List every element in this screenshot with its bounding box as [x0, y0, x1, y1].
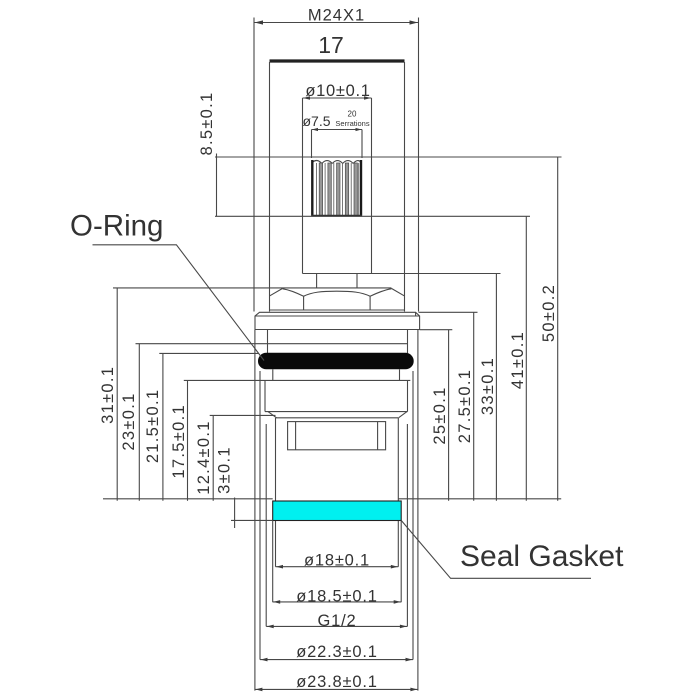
svg-text:G1/2: G1/2 [318, 612, 357, 630]
svg-text:Serrations: Serrations [335, 119, 369, 128]
svg-text:27.5±0.1: 27.5±0.1 [456, 369, 474, 444]
svg-text:ø18±0.1: ø18±0.1 [304, 552, 370, 570]
svg-text:50±0.2: 50±0.2 [540, 284, 558, 342]
svg-text:17: 17 [318, 32, 344, 58]
svg-text:12.4±0.1: 12.4±0.1 [195, 420, 213, 495]
svg-text:41±0.1: 41±0.1 [509, 331, 527, 389]
svg-text:25±0.1: 25±0.1 [431, 386, 449, 444]
svg-text:23±0.1: 23±0.1 [120, 392, 138, 450]
svg-text:33±0.1: 33±0.1 [479, 357, 497, 415]
svg-text:ø18.5±0.1: ø18.5±0.1 [296, 588, 377, 606]
svg-text:O-Ring: O-Ring [70, 210, 163, 243]
svg-text:ø23.8±0.1: ø23.8±0.1 [296, 673, 377, 691]
svg-text:8.5±0.1: 8.5±0.1 [198, 91, 216, 155]
svg-text:ø7.5: ø7.5 [303, 113, 331, 129]
svg-text:21.5±0.1: 21.5±0.1 [144, 389, 162, 464]
svg-text:Seal Gasket: Seal Gasket [460, 540, 624, 573]
svg-text:20: 20 [348, 110, 357, 119]
svg-text:3±0.1: 3±0.1 [215, 446, 233, 494]
svg-text:ø22.3±0.1: ø22.3±0.1 [296, 643, 377, 661]
svg-text:M24X1: M24X1 [308, 7, 365, 25]
svg-text:31±0.1: 31±0.1 [99, 366, 117, 424]
svg-text:17.5±0.1: 17.5±0.1 [170, 404, 188, 479]
svg-text:ø10±0.1: ø10±0.1 [305, 82, 370, 100]
